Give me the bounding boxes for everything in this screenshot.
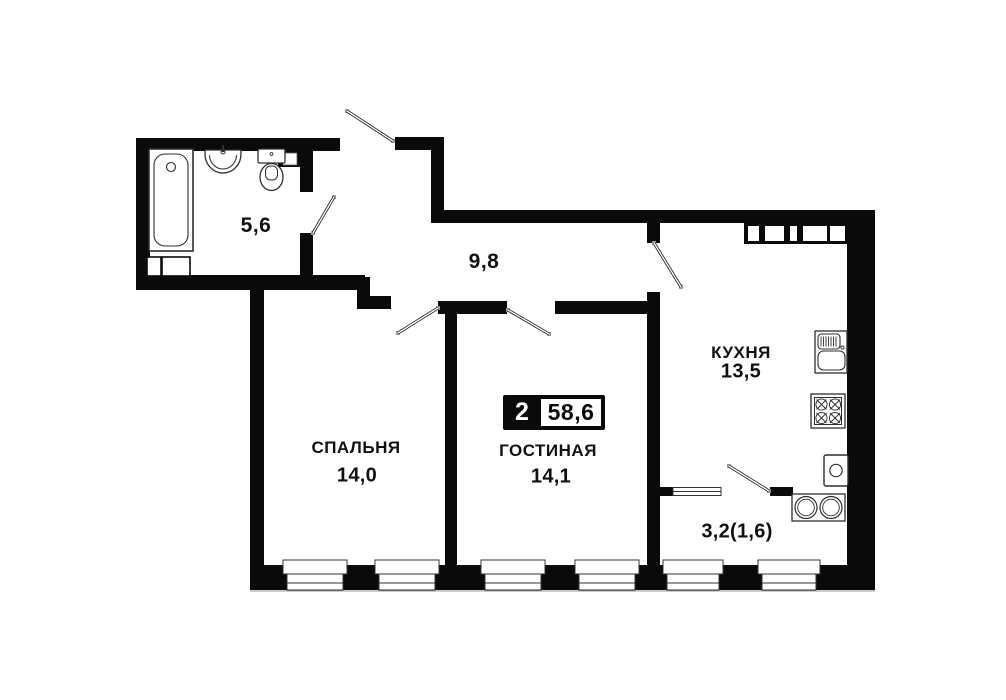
wall-segment: [357, 296, 391, 309]
wall-segment: [555, 301, 647, 314]
bathroom-area-label: 5,6: [241, 214, 272, 238]
washer-icon: [792, 494, 845, 521]
wall-segment: [300, 151, 313, 192]
badge-room-count: 2: [503, 395, 541, 430]
shaft-box: [147, 257, 161, 276]
vent-duct-icon: [744, 223, 848, 244]
boiler-icon: [824, 455, 848, 486]
living-door-swing: [508, 310, 549, 334]
window: [481, 560, 545, 590]
window: [283, 560, 347, 590]
wall-segment: [431, 210, 875, 223]
bedroom-area-label: 14,0: [337, 465, 377, 488]
floor-plan-drawing: [0, 0, 1006, 700]
floor-plan: 5,6 9,8 СПАЛЬНЯ 14,0 ГОСТИНАЯ 14,1 КУХНЯ…: [0, 0, 1006, 700]
wall-segment: [300, 233, 313, 277]
bedroom-name-label: СПАЛЬНЯ: [311, 438, 400, 458]
wall-segment: [655, 487, 673, 496]
window: [663, 560, 723, 590]
window: [575, 560, 639, 590]
shaft-box: [162, 257, 190, 276]
wall-segment: [250, 277, 264, 565]
wall-segment: [438, 301, 507, 314]
wall-segment: [647, 223, 660, 243]
kitchen-door-swing: [654, 243, 681, 287]
living-area-label: 14,1: [531, 466, 571, 489]
kitchen-sink-icon: [815, 331, 847, 373]
living-name-label: ГОСТИНАЯ: [499, 441, 597, 461]
bathtub-icon: [149, 149, 193, 251]
balcony-window: [673, 488, 721, 496]
window: [375, 560, 439, 590]
wall-segment: [770, 487, 793, 496]
toilet-icon: [258, 149, 285, 191]
wall-segment: [647, 292, 660, 565]
bedroom-door-swing: [398, 308, 438, 333]
entrance-door-swing: [347, 111, 393, 141]
apartment-type-badge: 2 58,6: [503, 395, 605, 430]
window: [758, 560, 820, 590]
stove-icon: [811, 394, 845, 428]
wall-segment: [445, 305, 457, 565]
kitchen-area-label: 13,5: [721, 361, 761, 384]
bathroom-door-swing: [313, 197, 334, 233]
balcony-area-label: 3,2(1,6): [701, 521, 772, 544]
badge-total-area: 58,6: [541, 399, 601, 426]
hallway-area-label: 9,8: [469, 250, 500, 274]
balcony-door-swing: [729, 466, 769, 491]
wall-segment: [847, 210, 875, 590]
